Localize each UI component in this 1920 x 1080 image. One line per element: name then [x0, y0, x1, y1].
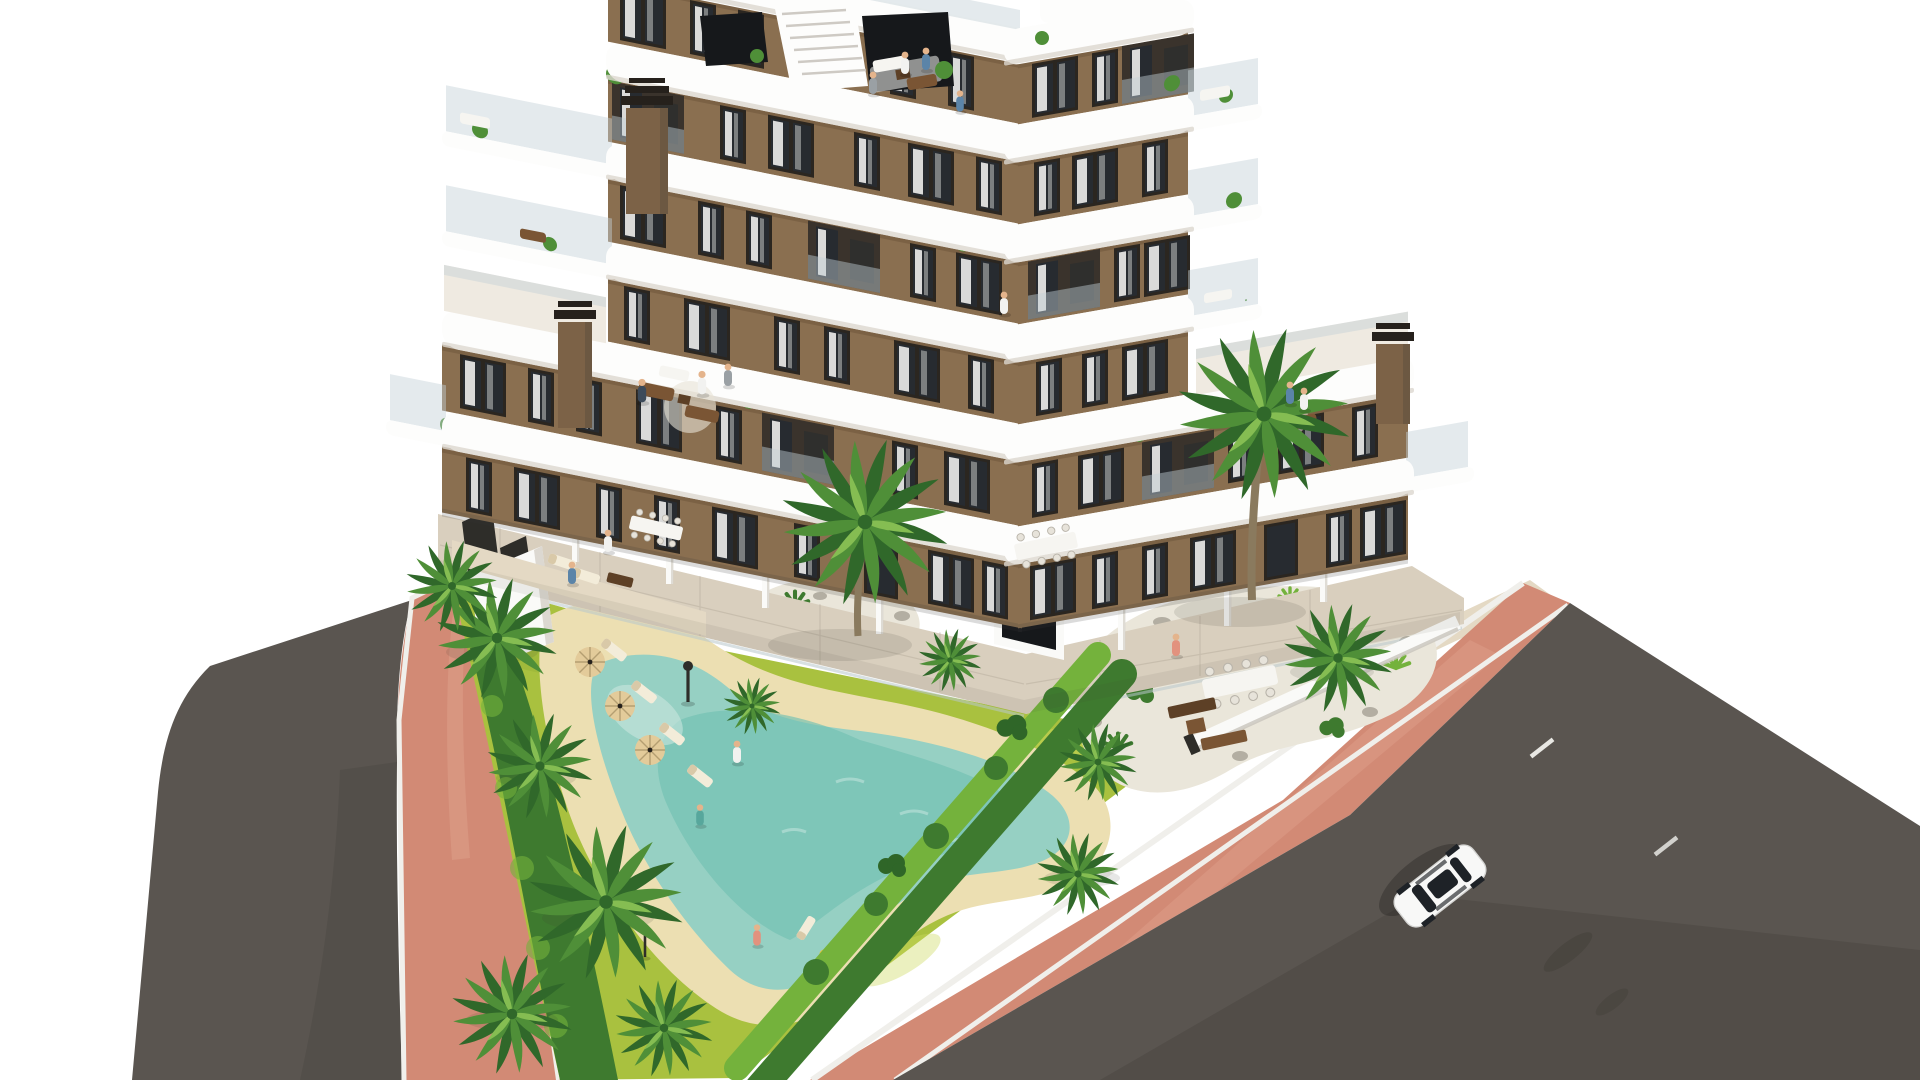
rooftop-plant — [1035, 31, 1049, 45]
rooftop-plant — [935, 61, 953, 79]
chimney — [621, 78, 673, 214]
chimney — [1372, 323, 1414, 424]
render-stage — [0, 0, 1920, 1080]
render-canvas — [0, 0, 1920, 1080]
rooftop-plant — [750, 49, 764, 63]
